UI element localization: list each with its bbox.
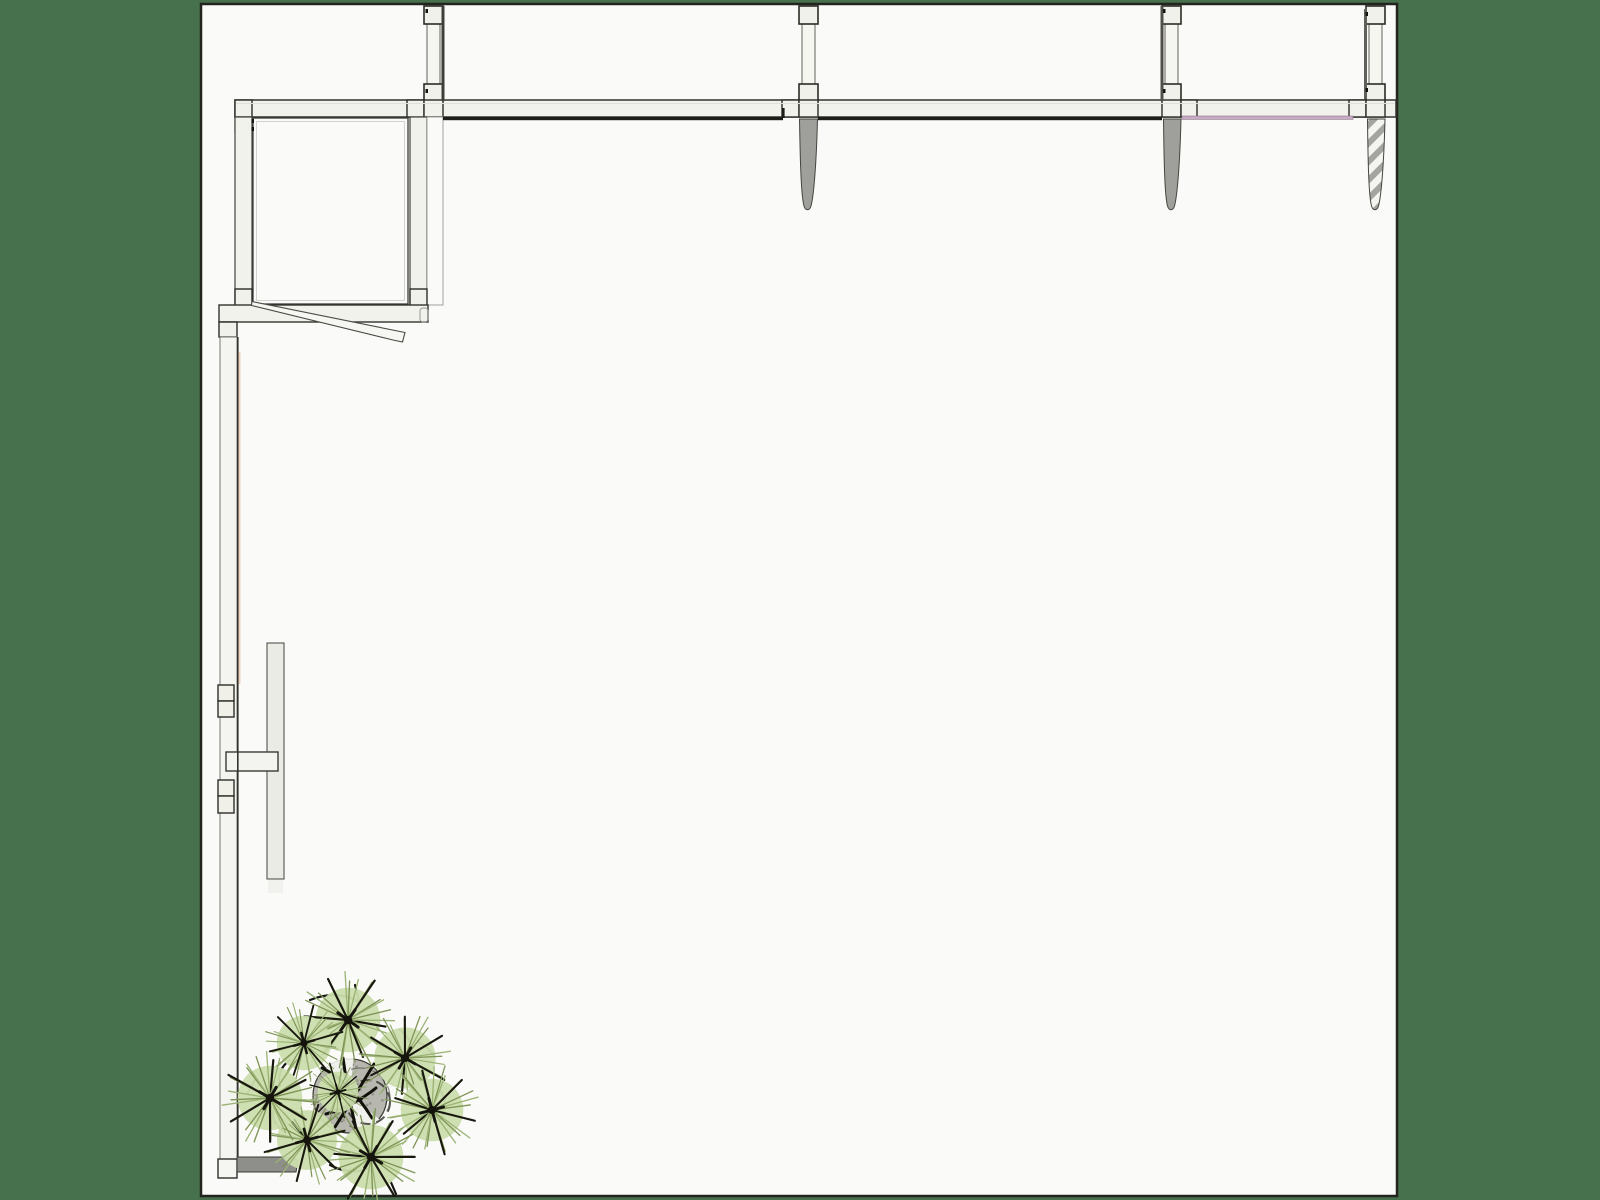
trunk-speckle bbox=[371, 1093, 374, 1096]
trunk-speckle bbox=[381, 1099, 384, 1102]
column-3-edge-shadow bbox=[1161, 6, 1164, 101]
connector-mark bbox=[252, 119, 255, 123]
trunk-speckle bbox=[342, 1119, 345, 1122]
room-corner-block-left bbox=[235, 289, 252, 306]
column-2-beam-block bbox=[799, 100, 818, 117]
column-1-beam-block-left bbox=[407, 100, 424, 117]
column-4-mid-block bbox=[1366, 84, 1385, 101]
column-3-beam-block-right bbox=[1181, 100, 1197, 117]
wall-plate-2 bbox=[218, 701, 234, 717]
connector-mark bbox=[1366, 88, 1369, 92]
screenshot-stage bbox=[0, 0, 1600, 1200]
beam-shadow-segment-1 bbox=[443, 117, 783, 120]
column-2-mid-block bbox=[799, 84, 818, 101]
wall-end-block bbox=[218, 1159, 237, 1178]
beam-shadow-segment-2 bbox=[818, 117, 1162, 120]
beam-shadow-tick bbox=[782, 108, 785, 118]
column-1-beam-block bbox=[424, 100, 443, 117]
background-layer bbox=[201, 4, 1397, 1196]
room-left-wall bbox=[235, 117, 252, 306]
column-1-edge-shadow bbox=[442, 6, 445, 101]
connector-mark bbox=[426, 89, 429, 93]
door-handle-bar bbox=[226, 752, 278, 771]
column-2-top-block bbox=[799, 6, 818, 24]
beam-end-block bbox=[235, 100, 252, 117]
column-4-edge-shadow bbox=[1364, 9, 1367, 99]
connector-mark bbox=[1163, 89, 1166, 93]
wall-top-block bbox=[219, 322, 237, 337]
trunk-speckle bbox=[366, 1104, 369, 1107]
sliding-door-leaf-shadow bbox=[268, 880, 283, 893]
column-1-top-block bbox=[424, 6, 443, 24]
column-4-beam-block-left bbox=[1349, 100, 1366, 117]
room-right-wall-outer bbox=[427, 117, 443, 305]
column-3-top-block bbox=[1162, 6, 1181, 24]
connector-mark bbox=[1366, 12, 1369, 16]
room-right-wall bbox=[410, 117, 427, 306]
left-wall bbox=[220, 337, 237, 1159]
column-4-beam-block bbox=[1366, 100, 1385, 117]
trunk-speckle bbox=[369, 1102, 372, 1105]
wall-plate-4 bbox=[218, 796, 234, 813]
wall-plate-1 bbox=[218, 685, 234, 701]
plan-drawing bbox=[0, 0, 1600, 1200]
connector-mark bbox=[1163, 9, 1166, 13]
room-corner-block-right bbox=[410, 289, 427, 306]
wall-plate-3 bbox=[218, 780, 234, 796]
paper-canvas[interactable] bbox=[201, 4, 1397, 1196]
pink-trim-line bbox=[1182, 116, 1353, 119]
connector-mark bbox=[426, 9, 429, 13]
column-4-top-block bbox=[1366, 6, 1385, 24]
column-3-beam-block bbox=[1162, 100, 1181, 117]
connector-mark bbox=[252, 127, 255, 131]
